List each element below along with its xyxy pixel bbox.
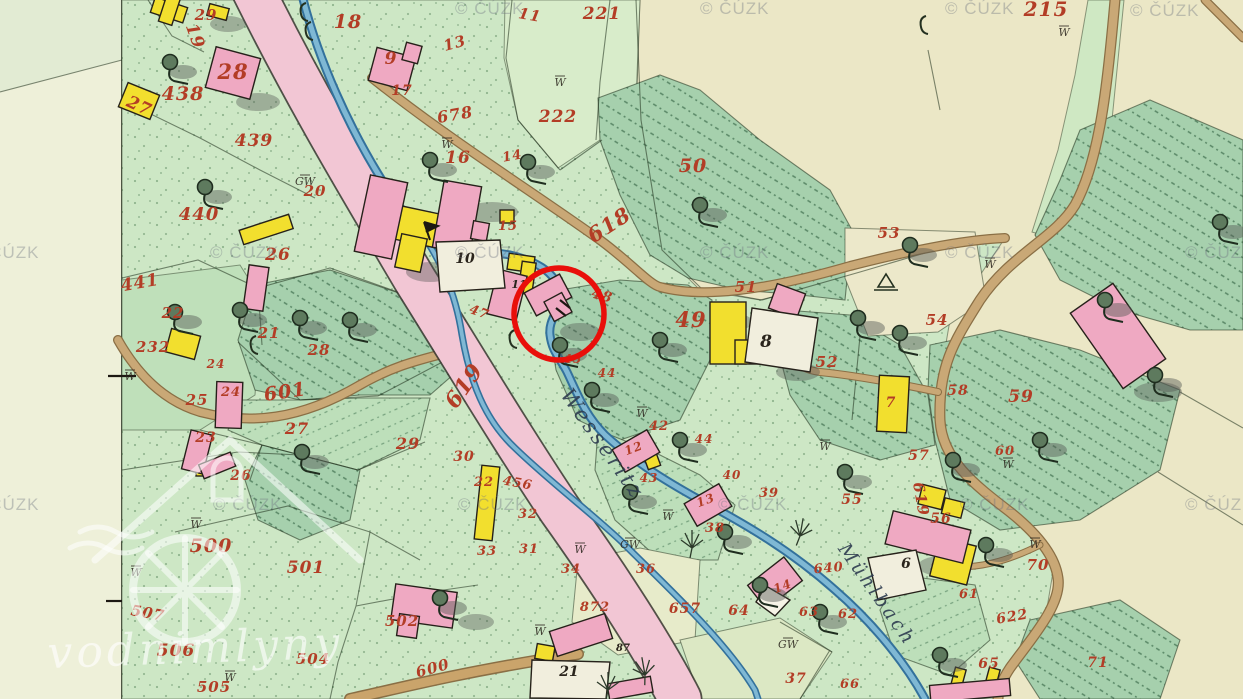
cuzk-attribution: © ČÚZK xyxy=(700,243,770,262)
cuzk-attribution: © ČÚZK xyxy=(718,495,788,514)
parcel-number-53: 53 xyxy=(878,224,901,242)
tree-crown xyxy=(293,311,308,326)
cuzk-attribution: © ČÚZK xyxy=(1185,495,1243,514)
meadow-mark: W xyxy=(1002,458,1015,471)
parcel-number-40: 40 xyxy=(723,468,742,482)
cuzk-attribution: © ČÚZK xyxy=(700,0,770,18)
parcel-number-65: 65 xyxy=(978,656,999,672)
parcel-number-57: 57 xyxy=(908,448,929,464)
parcel-number-58: 58 xyxy=(947,383,968,399)
meadow-mark: W xyxy=(534,625,547,638)
cuzk-attribution: © ČÚZK xyxy=(0,495,40,514)
cuzk-attribution: © ČÚZK xyxy=(458,495,528,514)
parcel-number-17: 17 xyxy=(391,83,412,99)
parcel-number-15: 15 xyxy=(498,219,518,234)
parcel-number-61: 61 xyxy=(959,587,979,602)
parcel-number-38: 38 xyxy=(705,521,725,536)
parcel-number-44: 44 xyxy=(598,366,617,380)
parcel-number-439: 439 xyxy=(235,131,274,151)
tree-crown xyxy=(893,326,908,341)
tree-crown xyxy=(1213,215,1228,230)
parcel-number-54: 54 xyxy=(926,311,949,329)
parcel-number-33: 33 xyxy=(477,544,497,559)
parcel-number-23: 23 xyxy=(194,430,216,446)
parcel-number-221: 221 xyxy=(582,4,622,24)
parcel-number-215: 215 xyxy=(1023,0,1069,21)
parcel-number-28: 28 xyxy=(307,341,331,359)
parcel-number-28: 28 xyxy=(216,59,248,84)
tree-crown xyxy=(233,303,248,318)
parcel-number-222: 222 xyxy=(538,107,578,127)
tree-crown xyxy=(673,433,688,448)
tree-crown xyxy=(553,338,568,353)
parcel-number-70: 70 xyxy=(1027,556,1050,574)
meadow-mark: W xyxy=(554,76,567,89)
parcel-number-657: 657 xyxy=(669,601,701,617)
meadow-mark: W xyxy=(636,407,649,420)
cuzk-attribution: © ČÚZK xyxy=(945,243,1015,262)
parcel-number-36: 36 xyxy=(636,562,656,577)
parcel-number-66: 66 xyxy=(840,677,860,692)
tree-crown xyxy=(163,55,178,70)
parcel-number-29: 29 xyxy=(395,434,420,453)
tree-crown xyxy=(979,538,994,553)
tree-crown xyxy=(693,198,708,213)
tree-crown xyxy=(1148,368,1163,383)
cuzk-attribution: © ČÚZK xyxy=(455,243,525,262)
parcel-number-440: 440 xyxy=(179,204,220,225)
tree-crown xyxy=(1033,433,1048,448)
parcel-number-37: 37 xyxy=(785,671,806,687)
tree-crown xyxy=(933,648,948,663)
watermark-logo-text: vodnimlyny xyxy=(47,618,344,679)
parcel-number-42: 42 xyxy=(649,419,669,434)
parcel-number-22: 22 xyxy=(161,304,185,322)
parcel-number-49: 49 xyxy=(675,307,706,332)
parcel-number-20: 20 xyxy=(303,182,327,200)
tree-crown xyxy=(295,445,310,460)
cuzk-attribution: © ČÚZK xyxy=(960,495,1030,514)
tree-crown xyxy=(838,465,853,480)
house-number-8: 8 xyxy=(759,332,772,352)
cuzk-attribution: © ČÚZK xyxy=(945,0,1015,18)
parcel-number-640: 640 xyxy=(813,560,844,578)
cuzk-attribution: © ČÚZK xyxy=(0,243,40,262)
tree-crown xyxy=(585,383,600,398)
house-number-87: 87 xyxy=(616,643,630,654)
parcel-number-71: 71 xyxy=(1087,655,1108,671)
parcel-number-505: 505 xyxy=(197,678,231,696)
parcel-number-21: 21 xyxy=(257,324,281,342)
parcel-number-62: 62 xyxy=(838,607,858,622)
map-canvas: GWGWGWWWWWWWWWWWWWWWW 291928438271891711… xyxy=(0,0,1243,699)
tree-crown xyxy=(198,180,213,195)
parcel-number-501: 501 xyxy=(287,558,326,578)
parcel-number-7: 7 xyxy=(886,395,897,411)
tree-crown xyxy=(903,238,918,253)
parcel-number-27: 27 xyxy=(284,419,309,438)
tree-crown xyxy=(653,333,668,348)
parcel-number-25: 25 xyxy=(185,391,209,409)
house-number-21: 21 xyxy=(558,664,578,680)
tree-crown xyxy=(423,153,438,168)
tree-crown xyxy=(946,453,961,468)
meadow-mark: W xyxy=(819,440,832,453)
tree-crown xyxy=(1098,293,1113,308)
parcel-number-24: 24 xyxy=(220,385,241,400)
parcel-number-63: 63 xyxy=(799,605,819,620)
parcel-number-31: 31 xyxy=(519,542,539,557)
tree-crown xyxy=(433,591,448,606)
meadow-mark: W xyxy=(1029,538,1042,551)
parcel-number-34: 34 xyxy=(561,562,581,577)
meadow-mark: W xyxy=(1058,26,1071,39)
parcel-number-64: 64 xyxy=(728,603,749,619)
cuzk-attribution: © ČÚZK xyxy=(1185,243,1243,262)
cadastral-map-screenshot: GWGWGWWWWWWWWWWWWWWWW 291928438271891711… xyxy=(0,0,1243,699)
meadow-mark: W xyxy=(124,370,137,383)
meadow-mark: GW xyxy=(778,638,800,651)
parcel-number-50: 50 xyxy=(679,155,707,177)
meadow-mark: W xyxy=(574,543,587,556)
parcel-number-502: 502 xyxy=(385,612,419,630)
parcel-number-56: 56 xyxy=(930,511,951,527)
parcel-number-438: 438 xyxy=(162,83,205,105)
parcel-number-9: 9 xyxy=(385,49,398,69)
tree-crown xyxy=(753,578,768,593)
meadow-mark: W xyxy=(662,510,675,523)
parcel-number-51: 51 xyxy=(735,278,758,296)
tree-crown xyxy=(343,313,358,328)
parcel-number-18: 18 xyxy=(334,11,362,33)
parcel-number-44: 44 xyxy=(695,432,714,446)
cuzk-attribution: © ČÚZK xyxy=(1130,1,1200,20)
meadow-mark: W xyxy=(190,518,203,531)
parcel-number-232: 232 xyxy=(135,338,170,356)
meadow-mark: GW xyxy=(620,538,642,551)
parcel-number-55: 55 xyxy=(841,492,862,508)
parcel-number-16: 16 xyxy=(445,148,471,168)
cuzk-attribution: © ČÚZK xyxy=(210,243,280,262)
tree-crown xyxy=(851,311,866,326)
parcel-number-60: 60 xyxy=(995,444,1015,459)
parcel-number-872: 872 xyxy=(580,600,610,615)
parcel-number-59: 59 xyxy=(1008,387,1034,407)
parcel-number-24: 24 xyxy=(206,357,226,371)
map-sheet-margin xyxy=(0,0,122,699)
parcel-number-22: 22 xyxy=(473,475,494,490)
cuzk-attribution: © ČÚZK xyxy=(455,0,525,18)
house-number-6: 6 xyxy=(901,556,911,572)
parcel-number-30: 30 xyxy=(453,449,474,465)
parcel-number-52: 52 xyxy=(816,353,839,371)
